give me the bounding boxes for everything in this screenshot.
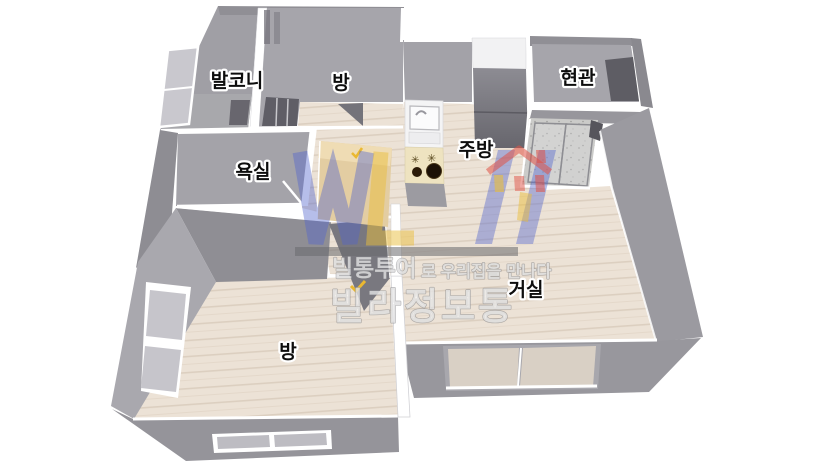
label-balcony: 발코니 [211,70,263,92]
window-sill [446,386,597,388]
sink [410,106,439,130]
south-window-pane [217,435,270,449]
floor-plan-image: ✳ ✳ 빌통투어 로 우리집을 만나다 빌라정보통 발코니 방 현관 욕실 주방… [0,0,840,472]
glass-mullion [287,99,288,126]
balcony-glass-pane [229,100,250,125]
room-top-glass-stripe [274,12,280,44]
label-bathroom: 욕실 [236,161,271,183]
entrance-sliding-door [559,124,594,186]
counter-shelf [409,132,440,144]
fridge-top-cabinet [472,38,526,69]
burner-symbol: ✳ [411,155,419,166]
fridge-door-split [474,112,527,113]
label-room-top: 방 [332,72,350,94]
house-wall-left [494,175,504,192]
watermark-tagline-rest: 로 우리집을 만나다 [421,262,552,281]
kitchen-back-wall [403,40,472,102]
glass-mullion [276,98,277,126]
entrance-dark-corner [605,57,639,101]
counter-base [405,183,447,207]
west-window-pane [146,290,186,340]
watermark-tagline-bold: 빌통투어 [332,255,417,281]
refrigerator [473,68,528,148]
stove-burner-large [427,164,442,179]
stove-burner-small [412,167,422,177]
kitchen-counter: ✳ ✳ [405,100,447,207]
room-top-glass-stripe [264,10,270,44]
watermark-brand: 빌라정보통 [330,286,515,327]
wall-edge [400,8,408,42]
balcony [159,6,258,130]
living-room-window-pane [448,348,519,387]
label-living-room: 거실 [509,279,544,301]
west-window-pane [141,346,181,392]
label-entrance: 현관 [561,67,596,89]
south-window-pane [274,433,327,447]
house-door [514,176,525,191]
label-kitchen: 주방 [459,139,494,161]
house-wall-right [535,175,545,192]
label-room-bottom: 방 [279,341,297,363]
floor-plan-svg: ✳ ✳ 빌통투어 로 우리집을 만나다 빌라정보통 발코니 방 현관 욕실 주방… [0,0,840,472]
room-top-balcony-glass-door [262,97,299,126]
house-chimney [536,150,546,163]
living-room-window-pane [520,346,596,387]
